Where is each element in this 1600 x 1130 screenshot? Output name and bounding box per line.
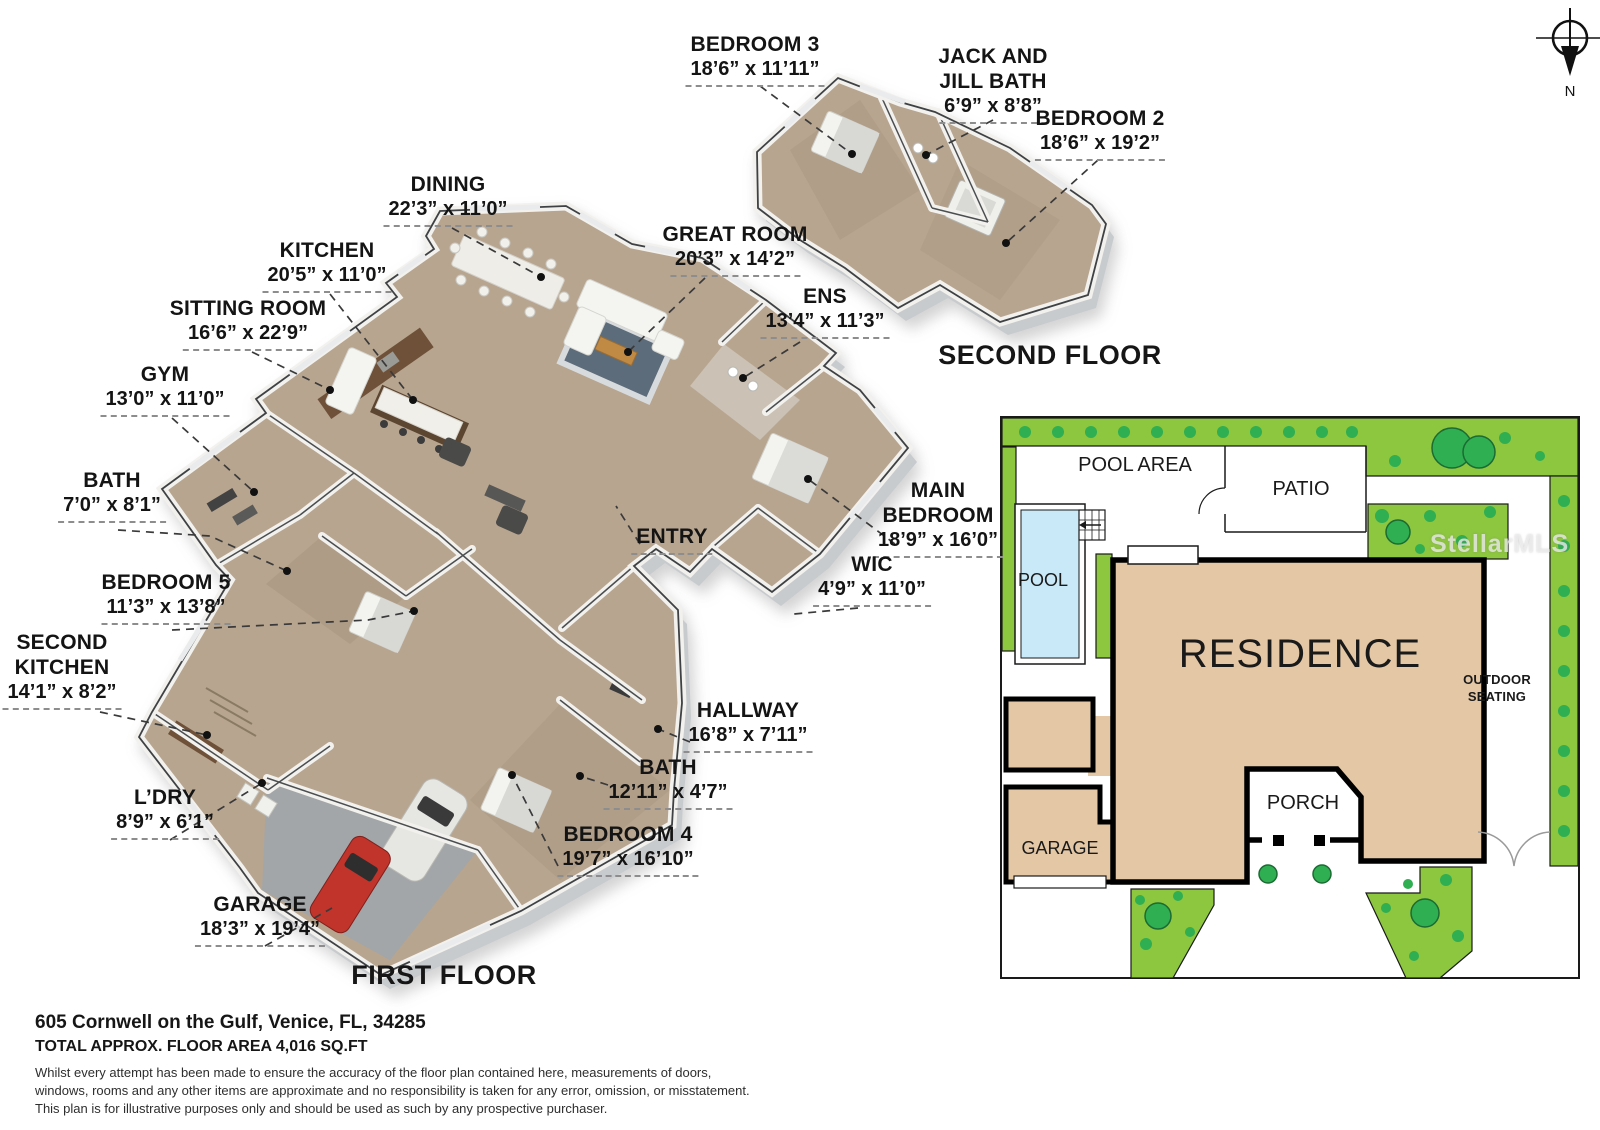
floor-area-line: TOTAL APPROX. FLOOR AREA 4,016 SQ.FT [35, 1038, 750, 1056]
room-label-bedroom-3: BEDROOM 3 18’6” x 11’11” [685, 32, 824, 87]
room-label-entry: ENTRY [631, 524, 712, 555]
room-label-laundry: L’DRY 8’9” x 6’1” [111, 785, 219, 840]
second-floor-title: SECOND FLOOR [938, 340, 1162, 371]
site-label-outdoor-seating: OUTDOOR SEATING [1463, 672, 1531, 706]
room-label-garage: GARAGE 18’3” x 19’4” [195, 892, 325, 947]
room-label-hallway: HALLWAY 16’8” x 7’11” [684, 698, 813, 753]
room-label-bedroom-4: BEDROOM 4 19’7” x 16’10” [557, 822, 698, 877]
site-label-porch: PORCH [1267, 792, 1339, 815]
room-label-kitchen: KITCHEN 20’5” x 11’0” [263, 238, 392, 293]
compass-north-icon: N [1534, 4, 1600, 100]
room-label-jack-and-jill-bath: JACK AND JILL BATH 6’9” x 8’8” [938, 44, 1047, 124]
room-label-great-room: GREAT ROOM 20’3” x 14’2” [662, 222, 807, 277]
disclaimer-line-1: Whilst every attempt has been made to en… [35, 1064, 750, 1082]
room-label-wic: WIC 4’9” x 11’0” [813, 552, 931, 607]
room-label-gym: GYM 13’0” x 11’0” [101, 362, 230, 417]
compass-north-label: N [1565, 83, 1576, 100]
footer-text-block: 605 Cornwell on the Gulf, Venice, FL, 34… [35, 1012, 750, 1118]
site-label-patio: PATIO [1272, 478, 1329, 501]
watermark-stellar-mls: StellarMLS [1430, 530, 1569, 559]
room-name: DINING [384, 172, 513, 197]
room-label-dining: DINING 22’3” x 11’0” [384, 172, 513, 227]
first-floor-title: FIRST FLOOR [351, 960, 536, 991]
room-label-bedroom-5: BEDROOM 5 11’3” x 13’8” [102, 570, 231, 625]
room-label-sitting-room: SITTING ROOM 16’6” x 22’9” [170, 296, 326, 351]
room-label-bath-2: BATH 12’11” x 4’7” [604, 755, 733, 810]
site-label-residence: RESIDENCE [1179, 632, 1421, 677]
site-label-pool-area: POOL AREA [1078, 454, 1192, 477]
room-label-bedroom-2: BEDROOM 2 18’6” x 19’2” [1035, 106, 1165, 161]
room-label-second-kitchen: SECOND KITCHEN 14’1” x 8’2” [3, 630, 122, 710]
disclaimer-line-2: windows, rooms and any other items are a… [35, 1082, 750, 1100]
site-label-pool: POOL [1018, 570, 1068, 591]
floor-plan-page: N DINING 22’3” x 11’0” KITCHEN 20’5” x 1… [0, 0, 1600, 1130]
room-label-ens: ENS 13’4” x 11’3” [761, 284, 890, 339]
disclaimer-line-3: This plan is for illustrative purposes o… [35, 1100, 750, 1118]
site-label-garage: GARAGE [1021, 838, 1098, 859]
room-label-bath-1: BATH 7’0” x 8’1” [58, 468, 166, 523]
address-line: 605 Cornwell on the Gulf, Venice, FL, 34… [35, 1012, 750, 1034]
room-dims: 22’3” x 11’0” [384, 197, 513, 227]
room-label-main-bedroom: MAIN BEDROOM 18’9” x 16’0” [873, 478, 1003, 558]
